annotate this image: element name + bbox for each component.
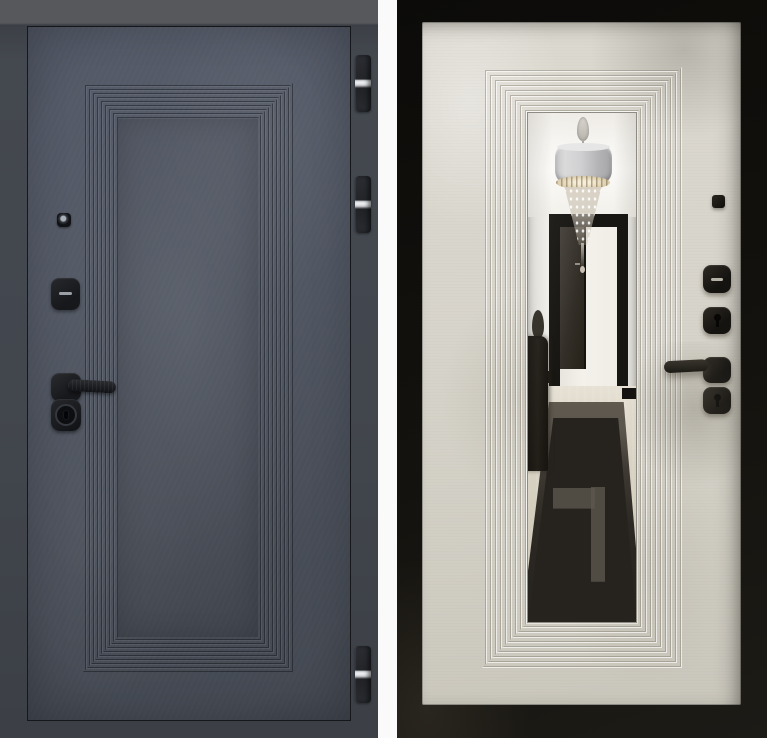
door-handle-front [68, 379, 117, 393]
panel-face [118, 118, 258, 637]
peephole-icon [57, 213, 71, 227]
ridge-top [83, 83, 293, 118]
ridge-left [83, 83, 118, 672]
photo-gap-divider [378, 0, 397, 738]
handle-rosette-back [703, 357, 731, 383]
mirror-glare [528, 113, 637, 623]
ridge-bottom [482, 623, 682, 668]
hinge-middle [355, 176, 371, 233]
ridge-left [482, 67, 527, 668]
door-leaf-back [422, 22, 741, 705]
keyhole-escutcheon-upper [703, 307, 731, 334]
ridge-right [258, 83, 293, 672]
door-handle-back [664, 359, 709, 373]
door-interior-view [397, 0, 767, 738]
thumbturn-escutcheon-back [703, 265, 731, 293]
ridge-top [482, 67, 682, 112]
lock-cylinder-front [51, 399, 81, 431]
hinge-top [355, 55, 371, 112]
mirror-inlay [527, 112, 637, 623]
thumbturn-escutcheon [51, 278, 80, 310]
keyhole-escutcheon-lower [703, 387, 731, 414]
reflected-baseboard-right [622, 388, 637, 399]
door-exterior-view [0, 0, 378, 738]
hinge-cap-square [712, 195, 725, 208]
ridge-right [637, 67, 682, 668]
ridge-bottom [83, 637, 293, 672]
door-leaf-front [27, 26, 351, 721]
hinge-bottom [355, 646, 371, 703]
product-photo-two-door-views [0, 0, 767, 738]
